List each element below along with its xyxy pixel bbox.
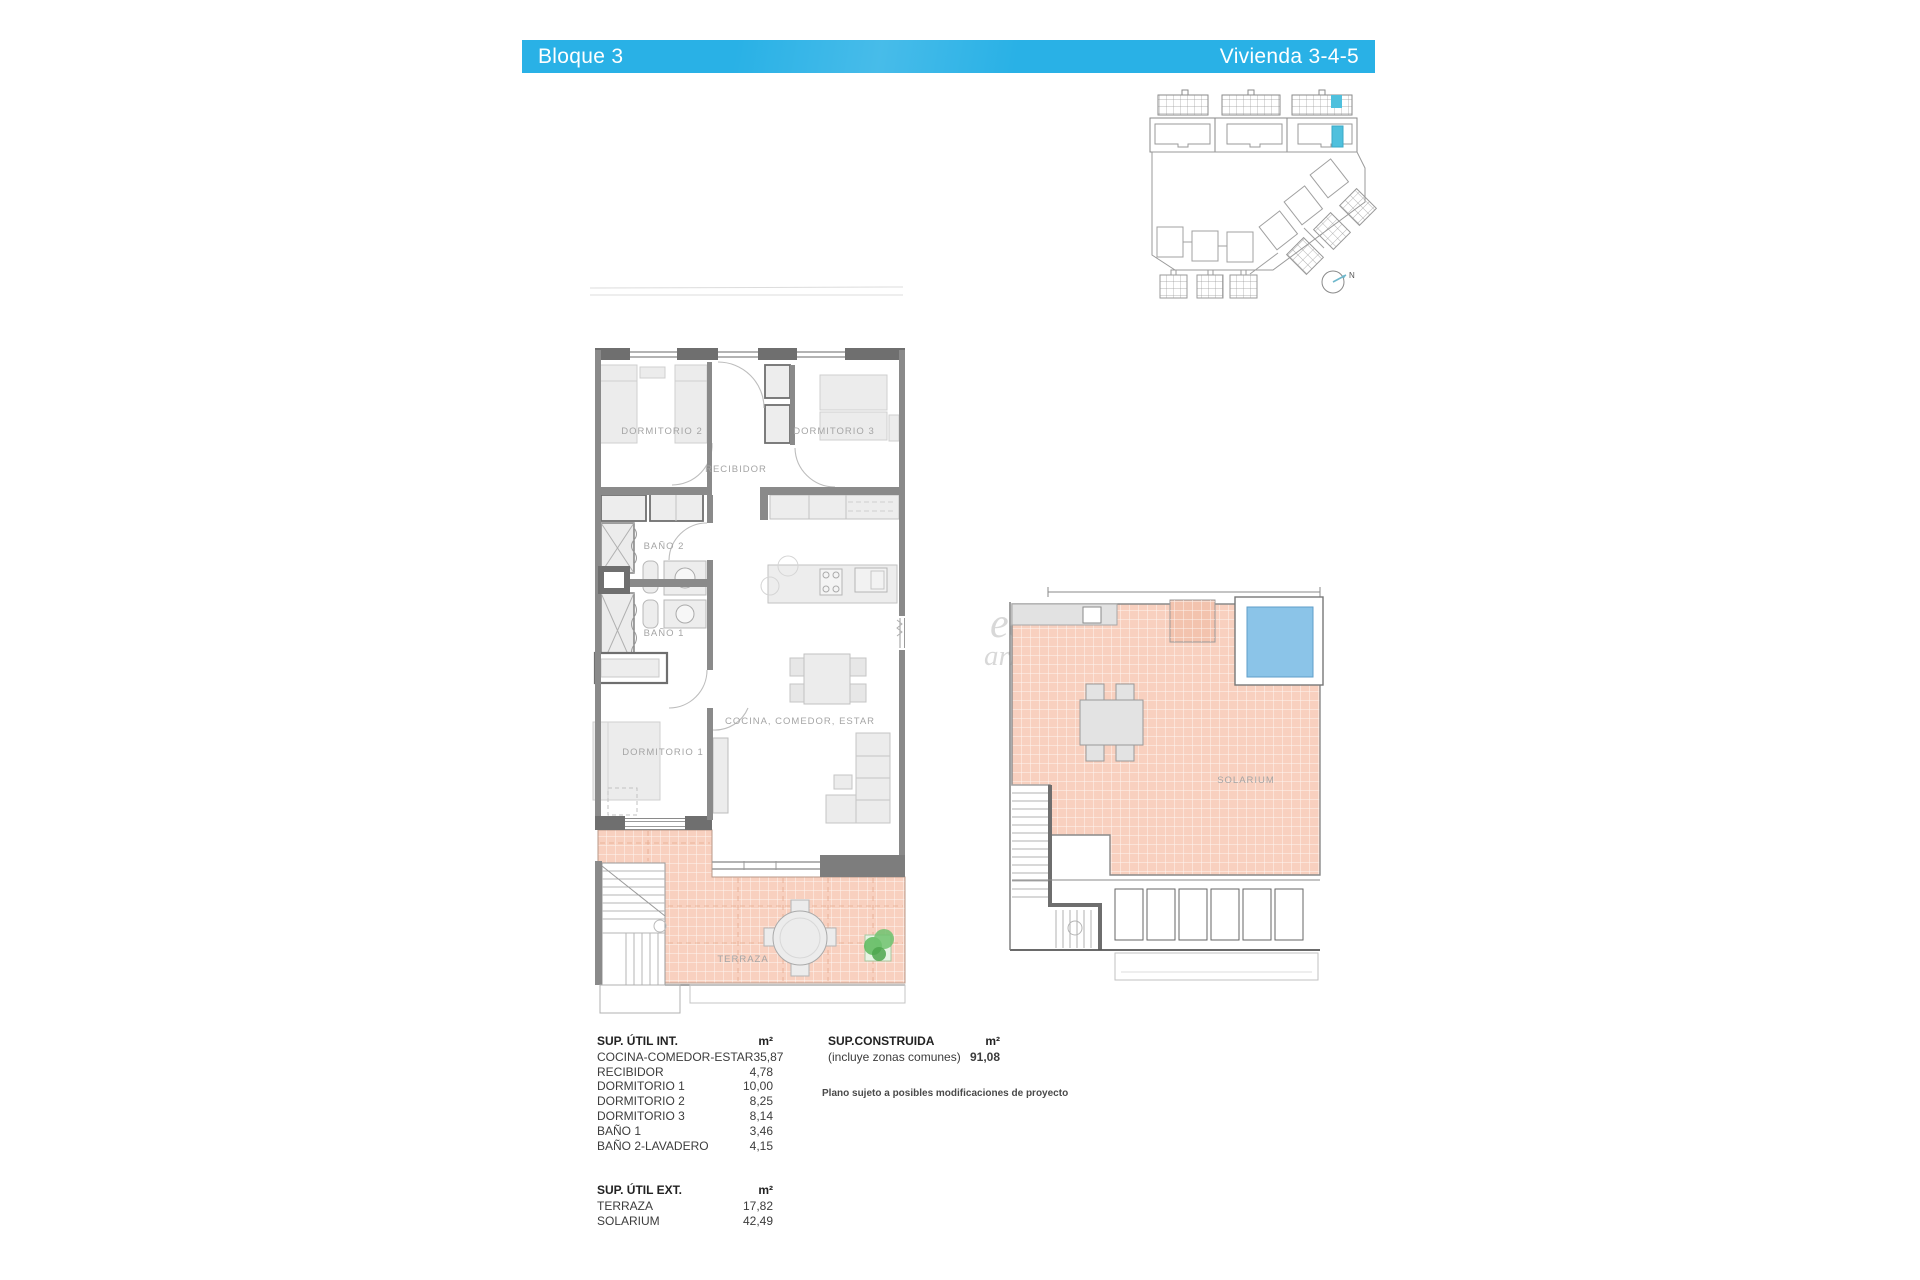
shaft-1 [601,523,637,573]
table-sup-construida: SUP.CONSTRUIDA m² (incluye zonas comunes… [828,1034,1000,1065]
divider-lines [590,287,903,295]
solarium-plan: SOLARIUM [1003,583,1335,1007]
laundry-closets [601,493,703,521]
table-row: DORMITORIO 1 10,00 [597,1079,773,1094]
room-label-cocina: COCINA, COMEDOR, ESTAR [725,716,875,727]
dining-set [790,654,866,704]
table-const-subtitle: (incluye zonas comunes) [828,1050,961,1065]
disclaimer-note: Plano sujeto a posibles modificaciones d… [822,1088,1068,1099]
table-row: SOLARIUM 42,49 [597,1214,773,1229]
room-label-bano2: BAÑO 2 [644,541,685,552]
title-bar: Bloque 3 Vivienda 3-4-5 [522,40,1375,73]
parking-grids-top [1158,90,1352,115]
site-plan: N [1138,78,1428,318]
table-ext-title: SUP. ÚTIL EXT. [597,1183,682,1198]
room-label-bano1: BAÑO 1 [644,628,685,639]
highlighted-parking-cell [1331,95,1342,108]
floor-plan: DORMITORIO 2 RECIBIDOR DORMITORIO 3 BAÑO… [588,278,920,1018]
table-int-unit: m² [758,1034,773,1049]
table-row: COCINA-COMEDOR-ESTAR 35,87 [597,1050,773,1065]
table-row: RECIBIDOR 4,78 [597,1065,773,1080]
bath1-fixtures [643,600,706,628]
table-row: DORMITORIO 2 8,25 [597,1094,773,1109]
table-ext-unit: m² [758,1183,773,1198]
roof-strip [1012,604,1117,625]
stairs [595,861,666,985]
table-row: BAÑO 2-LAVADERO 4,15 [597,1139,773,1154]
table-int-title: SUP. ÚTIL INT. [597,1034,678,1049]
room-label-terraza: TERRAZA [717,954,768,965]
lower-landing [600,985,680,1013]
house-footprints-bottom [1157,227,1253,262]
highlighted-unit [1332,126,1343,147]
room-label-recibidor: RECIBIDOR [705,464,767,475]
roof-modules [1115,889,1303,940]
lower-ledge [1115,953,1318,980]
table-row: TERRAZA 17,82 [597,1199,773,1214]
room-label-solarium: SOLARIUM [1217,775,1275,786]
table-row: DORMITORIO 3 8,14 [597,1109,773,1124]
table-sup-util-ext: SUP. ÚTIL EXT. m² TERRAZA 17,82 SOLARIUM… [597,1183,773,1228]
hall-closets [765,365,790,443]
room-label-dormitorio2: DORMITORIO 2 [621,426,703,437]
table-const-title: SUP.CONSTRUIDA [828,1034,934,1049]
table-row: BAÑO 1 3,46 [597,1124,773,1139]
dorm1-closet [595,653,667,683]
bath2-fixtures [643,561,706,595]
kitchen-counter [770,495,899,519]
table-const-value: 91,08 [970,1050,1000,1065]
parking-grids-bottom [1160,270,1257,298]
kitchen-island [761,556,897,603]
room-label-dormitorio1: DORMITORIO 1 [622,747,704,758]
parcel-boundary [1152,152,1365,270]
pool [1235,597,1323,685]
dimension-line [1048,587,1320,597]
room-label-dormitorio3: DORMITORIO 3 [793,426,875,437]
north-compass-icon: N [1322,271,1355,293]
unit-title: Vivienda 3-4-5 [1204,45,1375,69]
upper-terrace-patch [1170,600,1215,642]
sofa [826,733,890,823]
block-title: Bloque 3 [522,45,639,69]
table-const-unit: m² [985,1034,1000,1049]
parking-grids-rotated [1287,189,1377,275]
terrace-border [690,985,905,1003]
north-label: N [1349,271,1355,280]
table-sup-util-int: SUP. ÚTIL INT. m² COCINA-COMEDOR-ESTAR 3… [597,1034,773,1153]
